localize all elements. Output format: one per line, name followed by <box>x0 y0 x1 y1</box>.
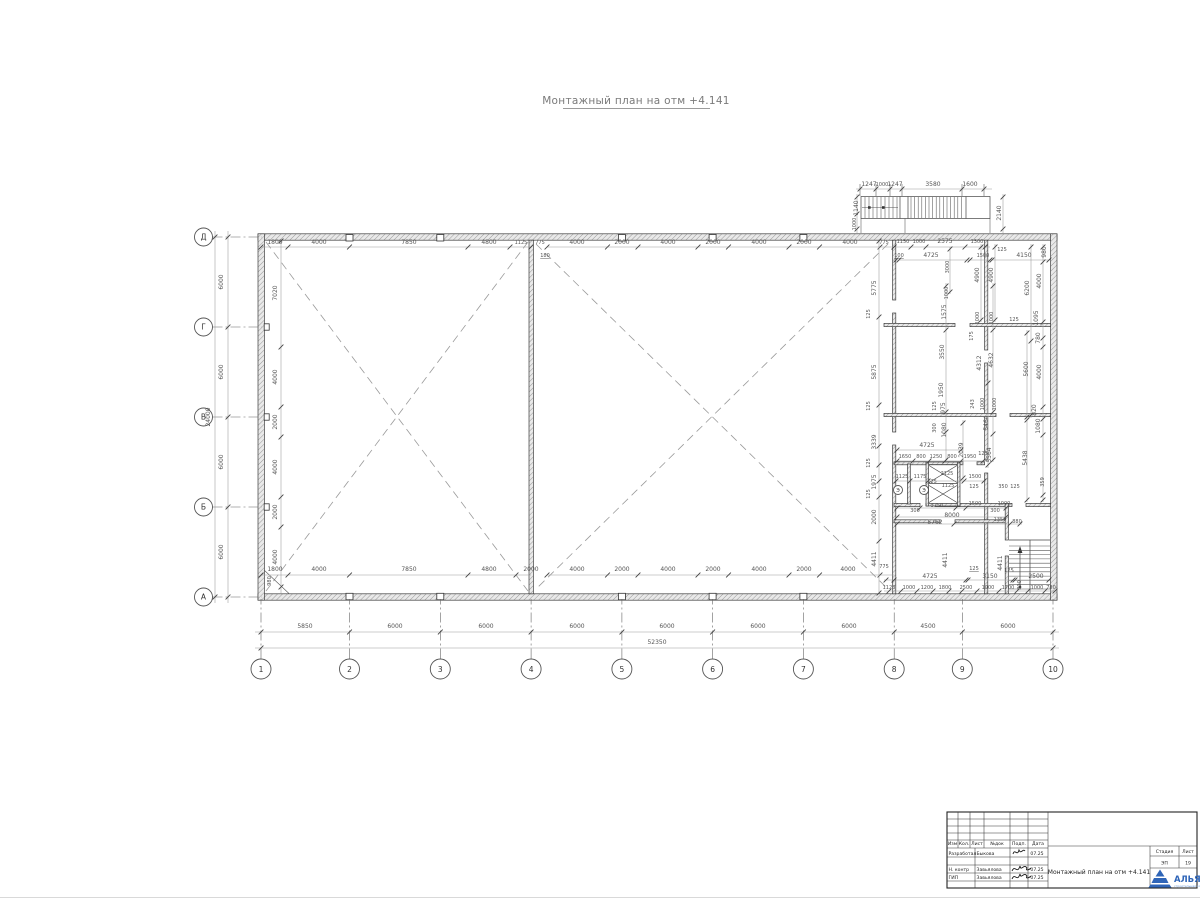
dim-label: 4725 <box>919 442 934 449</box>
dim-label: 2000 <box>796 239 811 246</box>
dim-label: 125 <box>997 247 1007 253</box>
dim-label: 300 <box>990 508 1000 514</box>
dim-label: 2125 <box>941 471 954 477</box>
dim-label: 800 <box>947 454 957 460</box>
dim-label: 775 <box>535 240 545 246</box>
dim-label: 1247 <box>861 181 876 188</box>
dim-label: 1000 <box>944 287 950 300</box>
dim-label: 1247 <box>887 181 902 188</box>
dim-label: 4000 <box>272 459 279 474</box>
dim-label: 100 <box>894 253 904 259</box>
dim-label: 8000 <box>944 512 959 519</box>
dim-label: 4150 <box>1016 252 1031 259</box>
dim-label: 350 <box>998 484 1008 490</box>
dim-label: 4000 <box>840 566 855 573</box>
dim-label: 243 <box>970 399 976 409</box>
dim-label: 359 <box>1040 477 1046 487</box>
dim-label: 6000 <box>659 623 674 630</box>
dim-label: 2000 <box>272 414 279 429</box>
axis-label-col: 3 <box>438 665 443 674</box>
dim-label: 5600 <box>1023 361 1030 376</box>
axis-label-row: Г <box>201 323 206 332</box>
company-logo-icon <box>1149 870 1172 888</box>
dim-label: 1975 <box>871 474 878 489</box>
dim-label: 2000 <box>523 566 538 573</box>
title-block: Изм Кол. Лист №док Подп. Дата Разработал… <box>947 812 1200 888</box>
dim-label: 2000 <box>796 566 811 573</box>
dim-label: 2500 <box>960 585 973 591</box>
tb-role-0: Разработал <box>949 851 977 857</box>
tb-header-izm: Изм <box>948 841 958 847</box>
tb-header-list: Лист <box>971 841 983 847</box>
dim-label: 52350 <box>647 639 666 646</box>
axis-label-col: 4 <box>529 665 534 674</box>
tb-stage-label: Стадия <box>1156 849 1174 855</box>
dim-label: 2575 <box>937 238 952 245</box>
tb-date-0: 07.25 <box>1030 851 1043 857</box>
roof-bracing <box>264 242 888 594</box>
dim-label: 1000 <box>980 398 986 411</box>
dim-label: 3750 <box>931 503 944 509</box>
dim-label: 4500 <box>920 623 935 630</box>
tb-header-kol: Кол. <box>959 841 969 847</box>
dim-label: 4800 <box>481 239 496 246</box>
equipment-marks: ЭЭ <box>894 486 929 495</box>
dim-label: 1500 <box>969 474 982 480</box>
dim-label: 2000 <box>705 566 720 573</box>
dim-label: 6000 <box>569 623 584 630</box>
tb-date-2: 07.25 <box>1030 875 1043 881</box>
dim-label: 4900 <box>974 267 981 282</box>
dim-label: 4000 <box>569 239 584 246</box>
axis-label-row: Б <box>201 503 206 512</box>
tb-header-podp: Подп. <box>1012 841 1026 847</box>
dim-label: 4725 <box>923 252 938 259</box>
dim-label: 1000 <box>852 218 858 231</box>
dim-label: 1175 <box>914 474 927 480</box>
tb-name-2: Завьялова <box>977 875 1002 881</box>
dim-label: 6000 <box>1000 623 1015 630</box>
cad-sheet: Монтажный план на отм +4.141 <box>0 0 1200 900</box>
dim-label: 1700 <box>1002 585 1015 591</box>
building-outer-walls <box>258 234 1057 600</box>
dim-label: 1800 <box>267 566 282 573</box>
dim-label: 7850 <box>401 239 416 246</box>
equipment-label: Э <box>896 488 900 494</box>
axis4-wall <box>529 240 533 594</box>
dim-label: 4632 <box>988 352 995 367</box>
interior-stair <box>1009 540 1050 593</box>
dim-label: 6000 <box>387 623 402 630</box>
axis-label-col: 5 <box>620 665 625 674</box>
dim-label: 2500 <box>1028 573 1043 580</box>
dim-label: 2000 <box>614 566 629 573</box>
dim-label: 24000 <box>205 407 212 426</box>
tb-name-1: Завьялова <box>977 867 1002 873</box>
dim-label: 4000 <box>751 239 766 246</box>
dim-label: 1500 <box>969 501 982 507</box>
dim-label: 1300 <box>971 239 984 245</box>
dim-label: 3150 <box>982 573 997 580</box>
dim-label: 2000 <box>272 504 279 519</box>
dim-label: 125 <box>978 451 988 457</box>
tb-role-1: Н. контр <box>949 867 970 873</box>
dim-label: 975 <box>940 402 947 414</box>
dim-label: 1125 <box>896 474 909 480</box>
tb-doc-title: Монтажный план на отм +4.141 <box>1048 869 1151 876</box>
dim-label: 6000 <box>218 274 225 289</box>
dim-label: 3550 <box>939 344 946 359</box>
exterior-stair <box>860 184 990 233</box>
dim-label: 125 <box>1009 317 1019 323</box>
dim-label: 4000 <box>751 566 766 573</box>
dim-label: 5875 <box>871 364 878 379</box>
dim-label: 1125 <box>515 240 528 246</box>
dim-label: 1000 <box>975 312 981 325</box>
axis-label-col: 2 <box>347 665 352 674</box>
dim-label: 1000 <box>913 239 926 245</box>
dim-label: 180 <box>540 253 550 259</box>
dim-label: 4411 <box>871 551 878 566</box>
dim-label: 5850 <box>297 623 312 630</box>
dim-label: 800 <box>1017 580 1023 590</box>
company-logo-subtext: строительная компания <box>1174 884 1200 888</box>
dim-label: 4900 <box>988 267 995 282</box>
dim-label: 5775 <box>871 280 878 295</box>
tb-header-ndok: №док <box>990 841 1004 847</box>
dim-label: 1000 <box>903 585 916 591</box>
dim-label: 1575 <box>941 304 948 319</box>
dim-label: 1000 <box>982 585 995 591</box>
dim-label: 125 <box>1004 568 1014 574</box>
tb-name-0: Быкова <box>977 851 995 857</box>
dim-label: 1650 <box>899 454 912 460</box>
axis-label-col: 1 <box>259 665 264 674</box>
dim-label: 1350 <box>994 517 1007 523</box>
dim-label: 125 <box>969 484 979 490</box>
dim-label: 6000 <box>218 454 225 469</box>
dim-label: 980 <box>267 576 273 586</box>
dim-label: 780 <box>1035 332 1042 344</box>
dim-label: 4411 <box>997 555 1004 570</box>
dim-label: 1200 <box>921 585 934 591</box>
dim-label: 125 <box>866 458 872 468</box>
dim-label: 125 <box>866 489 872 499</box>
dim-label: 4000 <box>569 566 584 573</box>
dim-label: 5464 <box>983 415 990 430</box>
tb-header-data: Дата <box>1032 841 1044 847</box>
tb-sheet-label: Лист <box>1182 849 1194 855</box>
dim-label: 7020 <box>272 285 279 300</box>
dim-label: 4411 <box>942 552 949 567</box>
dim-label: 4000 <box>660 566 675 573</box>
dim-label: 300 <box>932 423 938 433</box>
dim-label: 800 <box>916 454 926 460</box>
dim-label: 1800 <box>267 239 282 246</box>
dim-label: 1950 <box>938 382 945 397</box>
dim-label: 3339 <box>871 434 878 449</box>
dim-label: 4725 <box>922 573 937 580</box>
dim-label: 125 <box>1010 484 1020 490</box>
dim-label: 1500 <box>977 253 990 259</box>
dim-label: 125 <box>969 566 979 572</box>
tb-sheet-value: 19 <box>1185 861 1191 867</box>
dim-label: 1150 <box>897 239 910 245</box>
signature-0 <box>1013 850 1025 854</box>
dim-label: 4000 <box>272 549 279 564</box>
dim-label: 1080 <box>1035 418 1042 433</box>
dim-label: 1950 <box>964 454 977 460</box>
dim-label: 4000 <box>311 239 326 246</box>
dim-label: 4000 <box>311 566 326 573</box>
dim-label: 6000 <box>218 364 225 379</box>
dim-label: 125 <box>866 401 872 411</box>
dim-label: 6000 <box>218 544 225 559</box>
tb-stage-value: ЭП <box>1161 861 1168 867</box>
axis-label-col: 8 <box>892 665 897 674</box>
axis-label-row: А <box>201 593 207 602</box>
dim-label: 5438 <box>1022 450 1029 465</box>
drawing-canvas: Монтажный план на отм +4.141 <box>0 0 1200 900</box>
dim-label: 2000 <box>614 239 629 246</box>
dim-label: 1000 <box>992 398 998 411</box>
dim-label: 4000 <box>1036 364 1043 379</box>
dim-label: 1000 <box>1031 585 1044 591</box>
dim-label: 7850 <box>401 566 416 573</box>
dim-label: 6000 <box>841 623 856 630</box>
dim-label: 1000 <box>989 312 995 325</box>
axis-label-col: 9 <box>960 665 965 674</box>
equipment-label: Э <box>922 488 926 494</box>
dim-label: 1600 <box>962 181 977 188</box>
dim-label: 4000 <box>1036 273 1043 288</box>
dim-label: 6000 <box>478 623 493 630</box>
dim-label: 2140 <box>996 205 1003 220</box>
dim-label: 880 <box>1012 519 1022 525</box>
tb-role-2: ГИП <box>949 875 959 881</box>
dim-label: 775 <box>879 240 889 246</box>
dim-label: 1080 <box>941 422 948 437</box>
dim-label: 1140 <box>853 200 860 215</box>
dim-label: 3580 <box>925 181 940 188</box>
dim-label: 775 <box>879 564 889 570</box>
dim-label: 1095 <box>1033 310 1040 325</box>
dim-label: 2000 <box>705 239 720 246</box>
axis-label-col: 10 <box>1048 665 1058 674</box>
dim-label: 1125 <box>942 483 955 489</box>
axis-label-col: 7 <box>801 665 806 674</box>
dim-label: 4000 <box>660 239 675 246</box>
dim-label: 125 <box>866 309 872 319</box>
dim-label: 6200 <box>1024 280 1031 295</box>
dim-label: 6000 <box>750 623 765 630</box>
dim-label: 175 <box>969 331 975 341</box>
dim-label: 125 <box>927 479 937 485</box>
columns <box>264 235 807 600</box>
dim-label: 125 <box>932 401 938 411</box>
dim-label: 4800 <box>481 566 496 573</box>
dim-label: 780 <box>1046 585 1056 591</box>
dim-label: 4000 <box>842 239 857 246</box>
dim-label: 300 <box>910 508 920 514</box>
tb-date-1: 07.25 <box>1030 867 1043 873</box>
page-title: Монтажный план на отм +4.141 <box>542 95 730 107</box>
dim-label: 5762 <box>927 519 942 526</box>
dim-label: 980 <box>1041 246 1048 258</box>
dim-label: 820 <box>1031 404 1038 416</box>
dim-label: 2000 <box>871 509 878 524</box>
axis-label-col: 6 <box>710 665 715 674</box>
dim-label: 1000 <box>998 501 1011 507</box>
dim-label: 4000 <box>272 369 279 384</box>
axis-label-row: Д <box>201 233 207 242</box>
dim-label: 1123 <box>883 585 896 591</box>
dim-label: 1250 <box>930 454 943 460</box>
dim-label: 1800 <box>939 585 952 591</box>
dim-label: 4312 <box>976 355 983 370</box>
dim-label: 3000 <box>945 261 951 274</box>
